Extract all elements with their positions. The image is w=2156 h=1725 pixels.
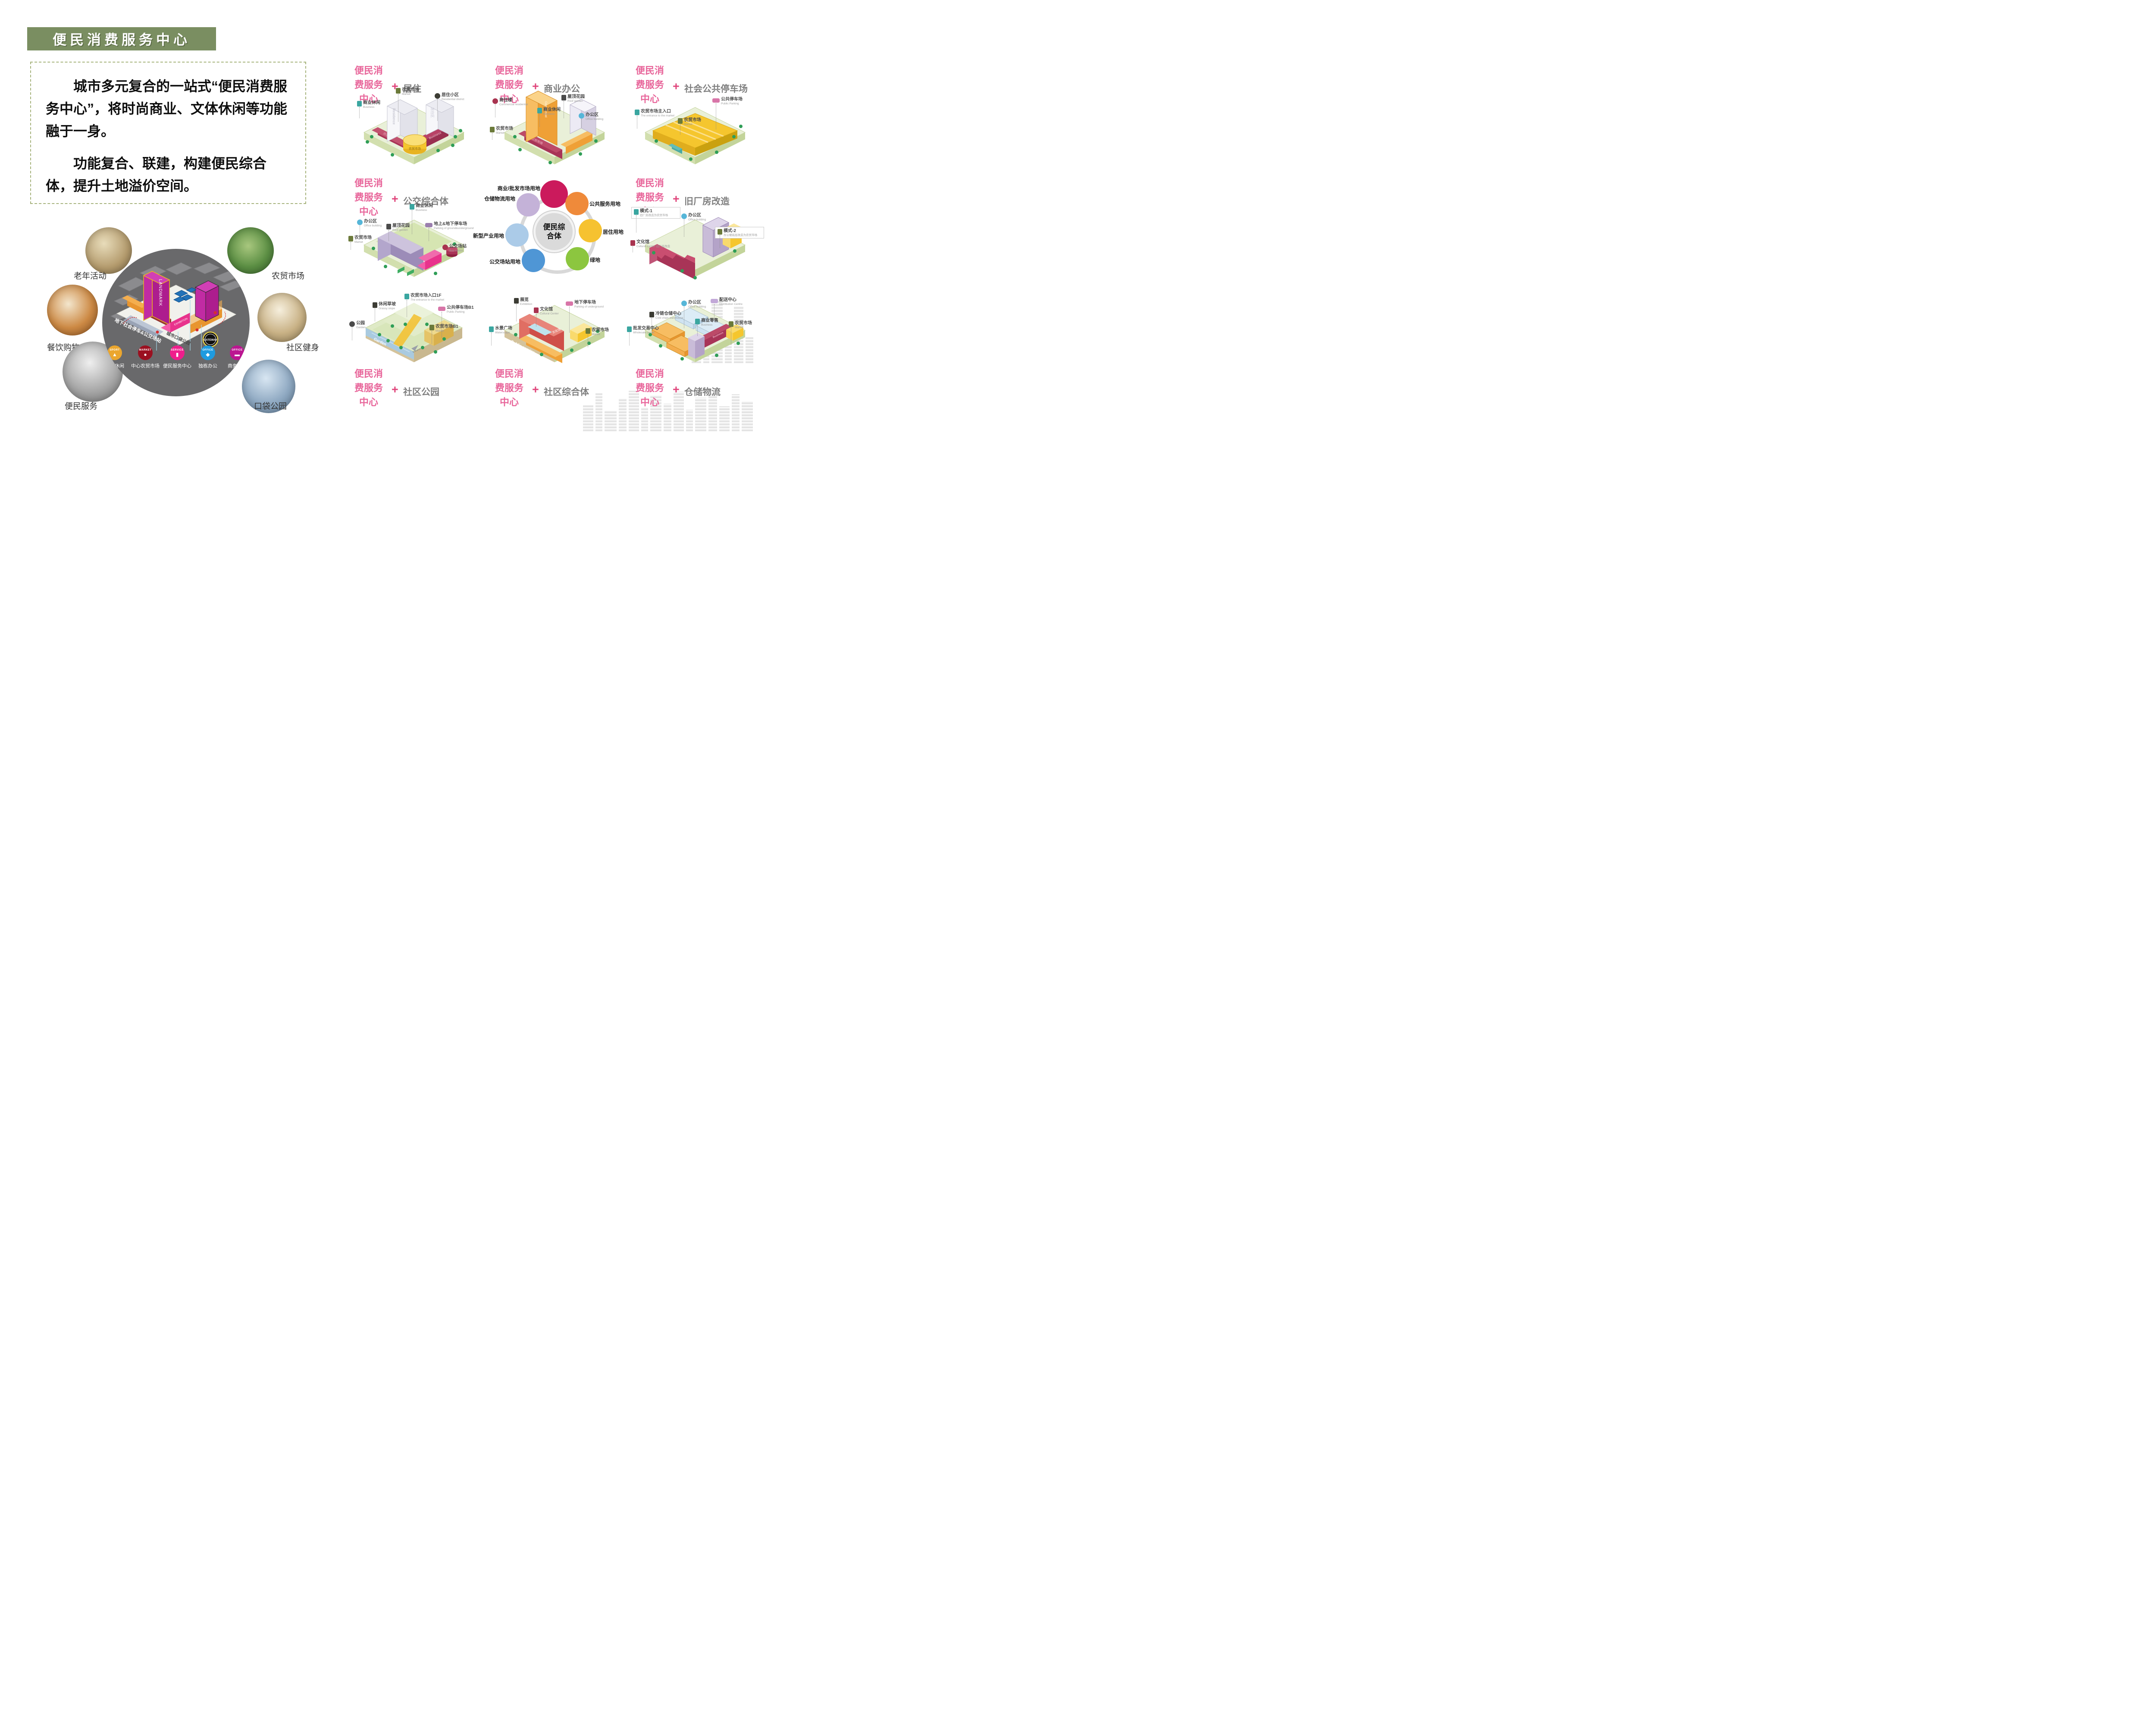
page-title-banner: 便民消费服务中心	[27, 27, 216, 50]
market-icon: MARKET	[138, 345, 153, 360]
office-gear-icon	[681, 213, 687, 219]
market-icon	[396, 88, 401, 94]
callout-waterscape: 水景广场Waterscape	[489, 326, 512, 334]
callout-exhibition: 展览Exhibition	[514, 298, 532, 306]
callout-market: 农贸市场Market	[729, 321, 752, 329]
garden-icon	[349, 321, 355, 327]
bubble-public-service	[565, 192, 589, 215]
callout-public-parking: 公共停车场Public Parking	[712, 97, 743, 105]
intro-textbox: 城市多元复合的一站式“便民消费服务中心”，将时尚商业、文体休闲等功能融于一身。 …	[30, 62, 306, 204]
callout-commercial-residential: 商住楼Commercial residential	[492, 98, 528, 106]
plus-sign: +	[532, 383, 539, 396]
callout-office: 办公区Office building	[357, 219, 382, 227]
car-icon	[438, 307, 445, 311]
cold-chain-icon	[649, 312, 654, 317]
grid-cell-residence: 便民消费服务中心 + 居住 Business 商业 Residence 居住区 …	[345, 63, 485, 175]
callout-market: 农贸市场Market	[396, 88, 419, 96]
roof-garden-icon	[561, 95, 566, 100]
callout-business-retail: 商业零售Business	[695, 318, 718, 326]
grid-cell-public-parking: 便民消费服务中心 + 社会公共停车场 农贸市场主入口The entrance t…	[626, 63, 766, 175]
wholesale-icon	[627, 326, 632, 332]
gateway-badge: GATEWAY	[204, 339, 217, 342]
callout-market-entrance: 农贸市场入口1FThe entrance to the market	[404, 293, 444, 301]
bubble-residential	[579, 219, 602, 242]
model-legend: SPORT 文体休闲 MARKET 中心农贸市场 SERVICE 便民服务中心 …	[102, 345, 250, 369]
central-model-circle: LANDMARK EXHIBITION GATEWAY 地下社会停车&公交场站	[102, 249, 250, 396]
svg-text:农贸市场: 农贸市场	[409, 147, 421, 151]
mode1-icon	[634, 209, 639, 215]
callout-cultural-center: 文化馆Cultural Center	[534, 307, 559, 315]
svg-text:Parking>>: Parking>>	[440, 351, 454, 360]
office-gear-icon	[579, 113, 584, 119]
market-icon	[429, 325, 434, 330]
callout-market: 农贸市场Market	[678, 118, 701, 126]
car-icon	[425, 223, 432, 227]
cell-function: 社区综合体	[544, 385, 589, 398]
plus-sign: +	[392, 383, 398, 396]
grid-cell-community-complex: Public service 文化馆 水景广场Waterscape 展览Exhi…	[486, 285, 626, 410]
market-icon	[678, 118, 683, 124]
cultural-center-icon	[630, 240, 635, 246]
cell-function: 仓储物流	[684, 385, 721, 398]
bubble-bus-station	[522, 249, 545, 272]
market-icon	[729, 321, 733, 327]
cell-function: 社区公园	[403, 385, 439, 398]
isometric-city-model: LANDMARK EXHIBITION GATEWAY 地下社会停车&公交场站	[106, 260, 246, 351]
intro-paragraph-2: 功能复合、联建，构建便民综合体，提升土地溢价空间。	[46, 153, 291, 198]
callout-public-parking: 公共停车场B1Public Parking	[438, 305, 474, 314]
market-icon	[348, 236, 353, 241]
callout-business-leisure: 商业休闲Business	[410, 204, 433, 212]
market-icon	[586, 328, 590, 334]
callout-office: 办公区Office building	[681, 213, 706, 221]
cultural-center-icon	[534, 307, 539, 313]
truck-icon	[711, 299, 718, 303]
service-icon: SERVICE	[170, 345, 185, 360]
photo-community-fitness	[257, 293, 307, 342]
callout-market: 农贸市场Market	[490, 126, 513, 135]
photo-label: 便民服务	[55, 400, 107, 411]
grid-cell-community-park: Garden Market>> Parking>> Entrance 公园Gar…	[345, 285, 485, 410]
business-icon	[695, 319, 700, 324]
callout-garden: 公园Garden	[349, 321, 366, 329]
callout-parking: 地上&地下停车场Parking of ground&underground	[425, 222, 474, 230]
callout-market: 农贸市场Market	[348, 235, 372, 244]
commercial-residential-icon	[492, 98, 498, 104]
landmark-text: LANDMARK	[158, 279, 163, 307]
page-title: 便民消费服务中心	[53, 29, 191, 49]
legend-item-office: OFFICE 独栋办公	[195, 345, 220, 369]
residential-icon	[435, 93, 440, 99]
grass-icon	[373, 302, 377, 308]
roof-garden-icon	[386, 224, 391, 229]
callout-mode-1: 模式-1旧厂房改造为农贸市场	[631, 207, 680, 219]
waterscape-icon	[489, 326, 494, 332]
bubble-commercial-wholesale	[540, 180, 568, 208]
market-icon	[490, 127, 495, 132]
callout-office: 办公区Office building	[681, 300, 706, 308]
office-gear-icon	[681, 301, 687, 306]
grid-cell-factory-renovation: 便民消费服务中心 + 旧厂房改造 模式-1旧厂房改造为农贸市场 办公区Offic…	[626, 175, 766, 287]
entrance-icon	[404, 294, 409, 299]
svg-text:居住区: 居住区	[430, 107, 435, 118]
exhibition-icon	[514, 298, 519, 304]
hub-center: 便民综合体	[533, 211, 575, 252]
photo-dining-shopping	[47, 285, 98, 336]
legend-item-sport: SPORT 文体休闲	[102, 345, 127, 369]
legend-item-business-residence: OFFICE 商务商住	[225, 345, 250, 369]
callout-business-leisure: 商业休闲Business	[357, 100, 380, 109]
business-icon	[357, 101, 362, 107]
plus-sign: +	[673, 383, 680, 396]
entrance-icon	[635, 110, 639, 115]
grid-cell-commercial-office: 便民消费服务中心 + 商业办公 农贸市场 Commercial 商住楼Comme…	[486, 63, 626, 175]
photo-label: 社区健身	[277, 341, 329, 353]
business-icon	[537, 108, 542, 113]
callout-office: 办公区Office building	[579, 113, 603, 121]
bubble-logistics	[517, 193, 540, 216]
photo-label: 农贸市场	[262, 270, 314, 281]
grid-cell-warehouse-logistics: Business 批发交易中心Wholesale center 冷链仓储中心Co…	[626, 285, 766, 410]
callout-wholesale-center: 批发交易中心Wholesale center	[627, 326, 659, 334]
callout-business-leisure: 商业休闲Business	[537, 107, 561, 116]
bus-station-icon	[442, 245, 448, 250]
callout-grassy-slope: 休闲草坡Grassy slope	[373, 302, 396, 310]
callout-residential: 居住小区Residential district	[435, 93, 464, 101]
callout-market-entrance: 农贸市场主入口The entrance to the market	[635, 109, 674, 117]
grid-cell-transit-complex: 便民消费服务中心 + 公交综合体 办公区Office building 农贸市场…	[345, 175, 485, 287]
callout-cultural-center: 文化馆Cultural Center 旧厂房改造	[630, 240, 670, 248]
legend-item-market: MARKET 中心农贸市场	[132, 345, 159, 369]
legend-item-service: SERVICE 便民服务中心	[163, 345, 191, 369]
mode2-icon	[718, 229, 722, 235]
callout-mode-2: 模式-2办公楼底层改造为农贸市场	[715, 227, 764, 238]
photo-label: 口袋公园	[244, 400, 296, 411]
car-icon	[712, 98, 720, 103]
car-icon	[566, 301, 573, 306]
callout-roof-garden: 屋顶花园Roof garden	[386, 223, 410, 232]
callout-underground-parking: 地下停车场Parking of underground	[566, 300, 604, 308]
sport-icon: SPORT	[107, 345, 122, 360]
bubble-green-space	[566, 247, 589, 270]
svg-text:Residence: Residence	[392, 108, 396, 125]
callout-market-b1: 农贸市场B1Market	[429, 324, 458, 332]
office-icon: OFFICE	[201, 345, 215, 360]
business-icon	[410, 204, 414, 210]
bubble-new-industry	[505, 223, 529, 247]
office-gear-icon	[357, 220, 363, 225]
laptop-icon: OFFICE	[230, 345, 244, 360]
callout-bus-station: 公交场站Bus station	[442, 244, 467, 252]
callout-market: 农贸市场Market	[586, 328, 609, 336]
callout-cold-chain: 冷链仓储中心Cold chain warehouse	[649, 311, 683, 320]
intro-paragraph-1: 城市多元复合的一站式“便民消费服务中心”，将时尚商业、文体休闲等功能融于一身。	[46, 75, 291, 142]
callout-distribution-center: 配送中心Distribution Centre	[711, 298, 743, 306]
hub-diagram: 便民综合体 商业/批发市场用地 公共服务用地 居住用地 绿地 公交场站用地 新型…	[472, 173, 636, 290]
callout-roof-garden: 屋顶花园Roof garden	[561, 94, 585, 103]
